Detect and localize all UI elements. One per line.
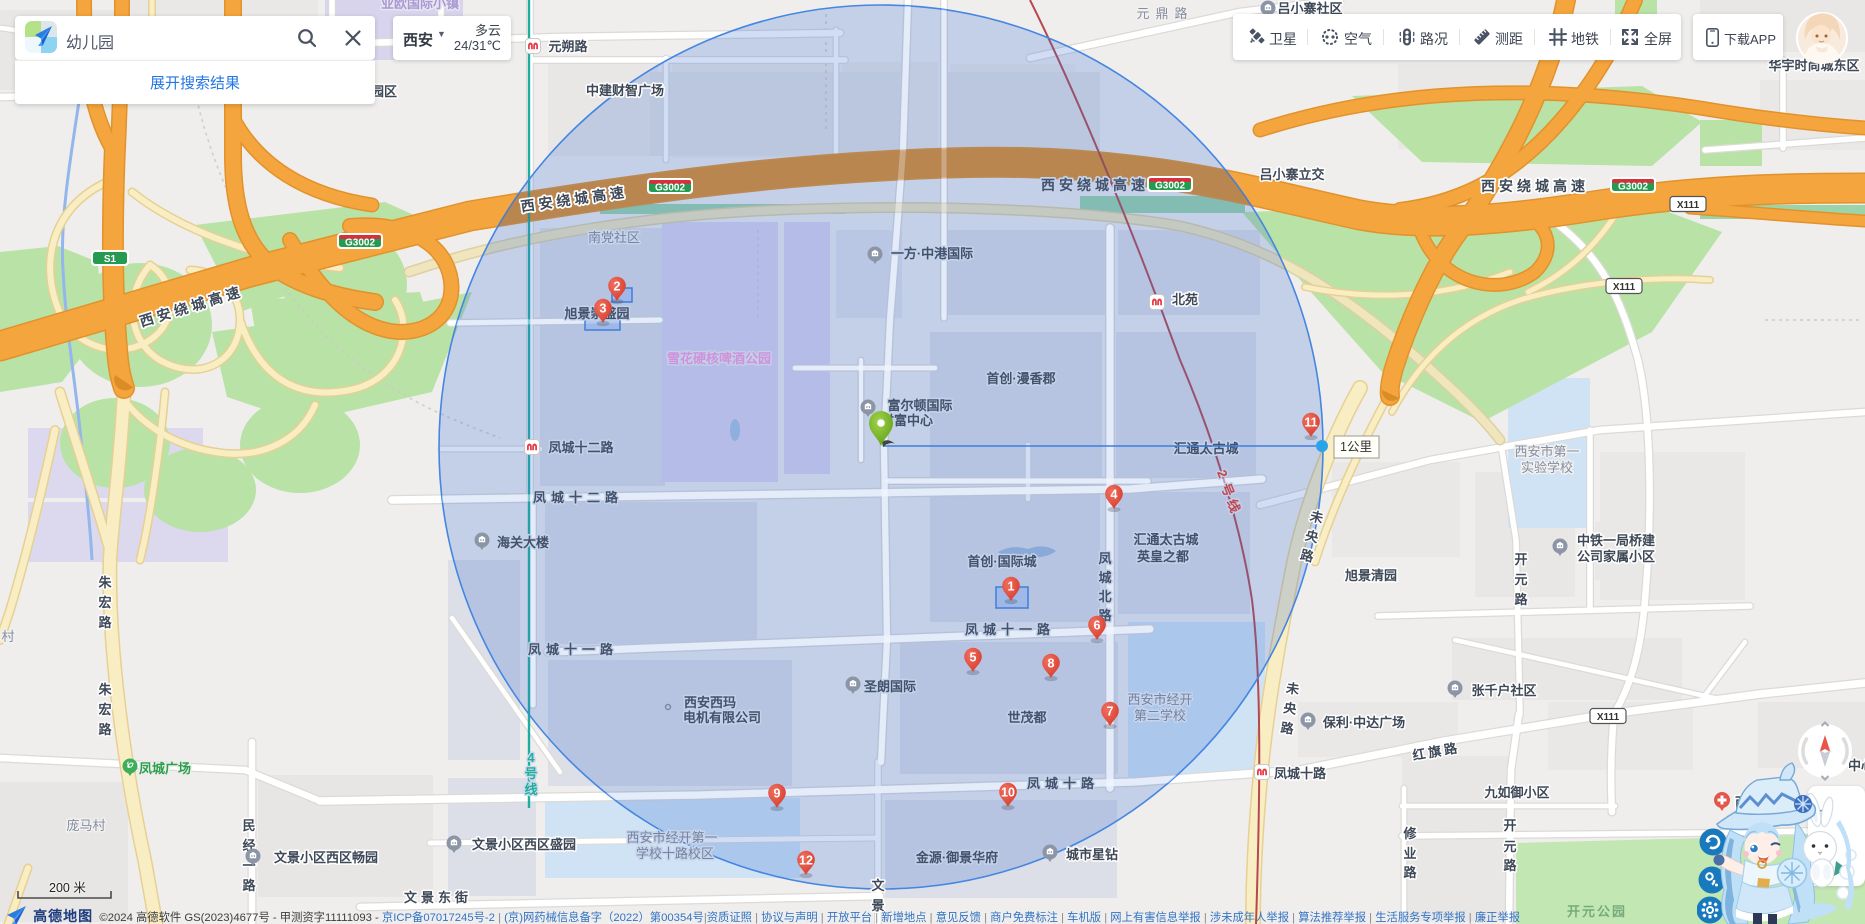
svg-text:凤城十路: 凤城十路	[1027, 776, 1099, 791]
svg-text:文景小区西区盛园: 文景小区西区盛园	[472, 837, 576, 852]
svg-text:凤城十二路: 凤城十二路	[548, 440, 614, 455]
svg-text:2: 2	[614, 280, 621, 294]
svg-text:西安西玛: 西安西玛	[684, 695, 736, 710]
svg-text:元朔路: 元朔路	[548, 39, 588, 54]
svg-text:G3002: G3002	[345, 238, 375, 249]
svg-text:S1: S1	[104, 254, 117, 265]
svg-text:路: 路	[1503, 858, 1517, 873]
svg-text:旭景清园: 旭景清园	[1344, 568, 1397, 583]
svg-text:学校十路校区: 学校十路校区	[636, 846, 714, 861]
svg-text:首创·漫香郡: 首创·漫香郡	[986, 371, 1055, 386]
svg-text:12: 12	[799, 854, 813, 868]
svg-text:西安绕城高速: 西安绕城高速	[1041, 177, 1149, 193]
svg-text:X111: X111	[1613, 282, 1636, 293]
svg-text:中建财智广场: 中建财智广场	[586, 83, 664, 98]
svg-text:7: 7	[1107, 705, 1114, 719]
svg-text:G3002: G3002	[655, 183, 685, 194]
svg-text:汇通太古城: 汇通太古城	[1133, 532, 1198, 547]
svg-text:宏: 宏	[98, 702, 111, 717]
svg-text:业欧国际小镇: 业欧国际小镇	[381, 0, 459, 11]
svg-text:城市星钻: 城市星钻	[1066, 847, 1118, 862]
svg-text:宏: 宏	[98, 595, 111, 610]
svg-text:路: 路	[1514, 592, 1528, 607]
svg-text:英皇之都: 英皇之都	[1136, 549, 1189, 564]
svg-text:庞马村: 庞马村	[66, 818, 105, 833]
svg-text:凤城十二路: 凤城十二路	[533, 490, 623, 505]
svg-text:业: 业	[1403, 846, 1416, 861]
svg-text:西安市第一: 西安市第一	[1514, 444, 1579, 459]
svg-text:吕小寨立交: 吕小寨立交	[1259, 167, 1324, 182]
svg-text:民: 民	[242, 818, 255, 833]
svg-text:富尔顿国际: 富尔顿国际	[887, 398, 952, 413]
svg-text:村: 村	[1, 629, 14, 644]
svg-text:1: 1	[1008, 580, 1015, 594]
svg-text:城: 城	[1098, 570, 1111, 585]
svg-text:朱: 朱	[97, 575, 112, 590]
svg-text:公司家属小区: 公司家属小区	[1577, 549, 1655, 564]
svg-text:金源·御景华府: 金源·御景华府	[915, 850, 998, 865]
svg-text:凤: 凤	[1098, 551, 1111, 566]
svg-text:开元公园: 开元公园	[1567, 904, 1627, 919]
svg-text:线: 线	[524, 782, 537, 797]
svg-text:9: 9	[774, 787, 781, 801]
svg-text:号: 号	[524, 766, 537, 781]
svg-text:6: 6	[1094, 619, 1101, 633]
svg-text:G3002: G3002	[1618, 182, 1648, 193]
svg-text:8: 8	[1048, 657, 1055, 671]
svg-text:西安市经开第一: 西安市经开第一	[626, 830, 717, 845]
svg-text:G3002: G3002	[1155, 181, 1185, 192]
svg-text:凤城十一路: 凤城十一路	[528, 642, 618, 657]
svg-text:第二学校: 第二学校	[1134, 708, 1186, 723]
svg-text:路: 路	[98, 615, 112, 630]
svg-text:4: 4	[527, 750, 535, 765]
svg-text:4: 4	[1111, 488, 1118, 502]
svg-text:一方·中港国际: 一方·中港国际	[891, 246, 973, 261]
svg-text:元: 元	[1514, 572, 1527, 587]
svg-text:文景东街: 文景东街	[404, 890, 472, 905]
svg-text:开: 开	[1514, 552, 1527, 567]
svg-text:朱: 朱	[97, 682, 112, 697]
svg-text:雪花硬核啤酒公园: 雪花硬核啤酒公园	[667, 351, 771, 366]
svg-text:九如御小区: 九如御小区	[1483, 785, 1549, 800]
svg-text:文景小区西区畅园: 文景小区西区畅园	[274, 850, 378, 865]
svg-text:保利·中达广场: 保利·中达广场	[1322, 715, 1405, 730]
svg-text:张千户社区: 张千户社区	[1471, 683, 1536, 698]
svg-text:西安绕城高速: 西安绕城高速	[1481, 178, 1589, 194]
svg-text:凤城广场: 凤城广场	[139, 761, 191, 776]
svg-text:5: 5	[970, 651, 977, 665]
svg-text:文: 文	[871, 878, 885, 893]
svg-text:北: 北	[1098, 589, 1111, 604]
svg-text:北苑: 北苑	[1172, 292, 1198, 307]
svg-text:海关大楼: 海关大楼	[497, 535, 549, 550]
svg-text:X111: X111	[1597, 712, 1620, 723]
svg-text:元鼎路: 元鼎路	[1136, 6, 1193, 21]
svg-text:汇通太古城: 汇通太古城	[1173, 441, 1238, 456]
svg-text:中铁一局桥建: 中铁一局桥建	[1577, 533, 1655, 548]
svg-text:1公里: 1公里	[1340, 440, 1372, 454]
svg-text:3: 3	[600, 302, 607, 316]
svg-text:X111: X111	[1677, 200, 1700, 211]
svg-text:10: 10	[1001, 786, 1015, 800]
svg-text:南党社区: 南党社区	[588, 230, 640, 245]
svg-text:首创·国际城: 首创·国际城	[967, 554, 1036, 569]
svg-text:开: 开	[1503, 818, 1516, 833]
svg-text:实验学校: 实验学校	[1521, 460, 1573, 475]
svg-text:元: 元	[1503, 839, 1516, 854]
svg-text:路: 路	[242, 878, 256, 893]
svg-text:11: 11	[1304, 416, 1317, 430]
svg-text:世茂都: 世茂都	[1007, 710, 1046, 725]
svg-text:凤城十一路: 凤城十一路	[965, 622, 1055, 637]
svg-text:凤城十路: 凤城十路	[1274, 766, 1327, 781]
svg-text:路: 路	[98, 722, 112, 737]
svg-text:电机有限公司: 电机有限公司	[683, 710, 761, 725]
svg-text:西安市经开: 西安市经开	[1127, 692, 1192, 707]
svg-text:路: 路	[1403, 865, 1417, 880]
svg-text:修: 修	[1402, 826, 1417, 841]
svg-text:圣朗国际: 圣朗国际	[864, 679, 916, 694]
